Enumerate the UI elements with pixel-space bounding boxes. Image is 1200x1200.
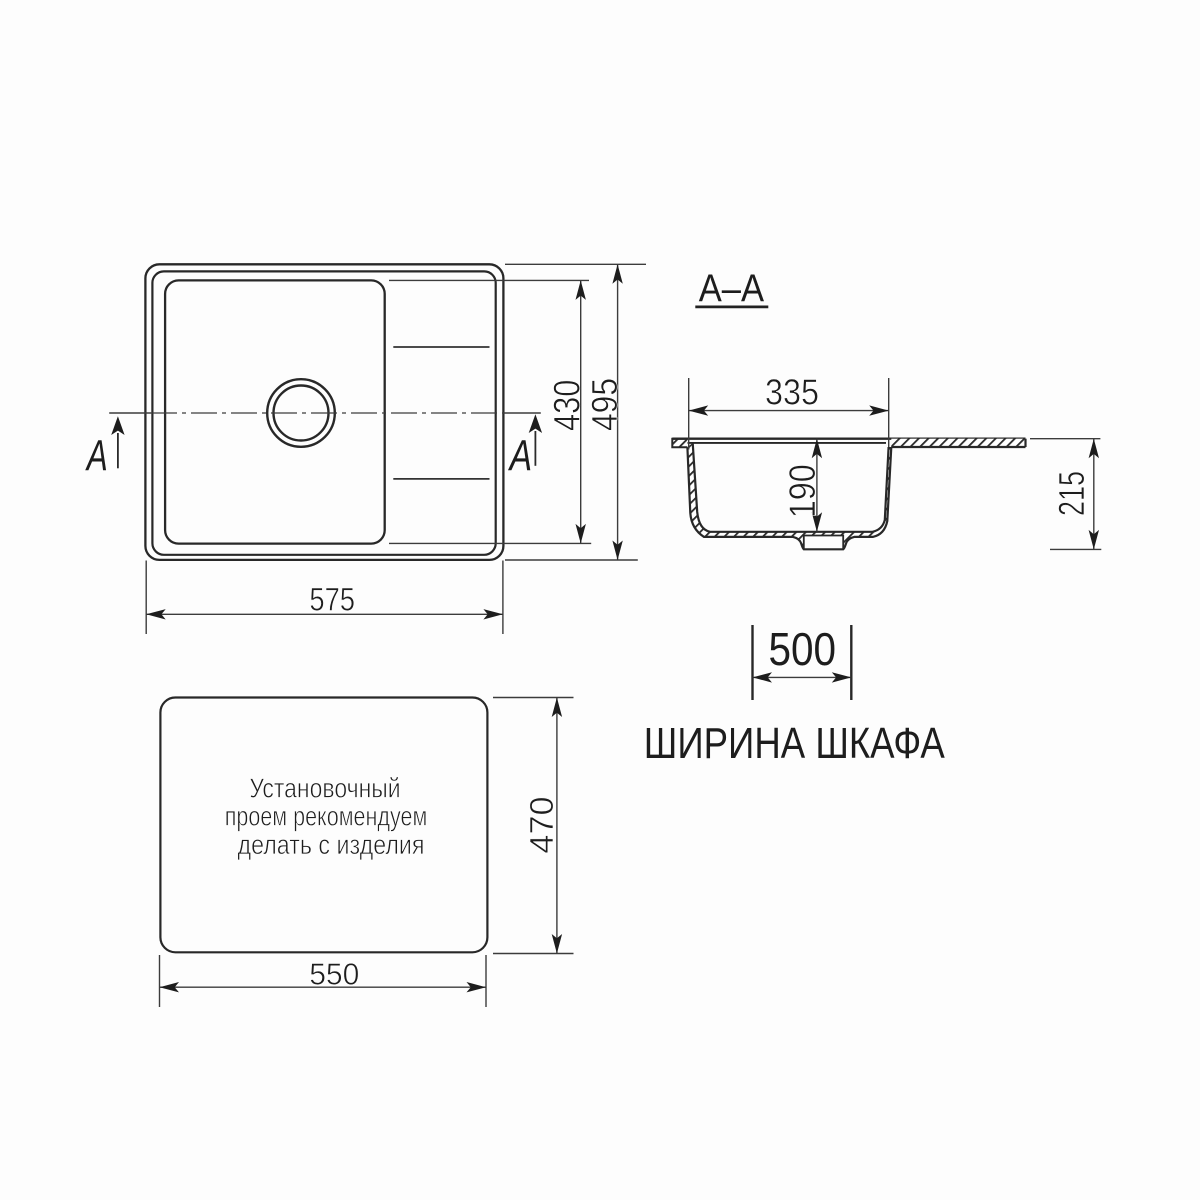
svg-text:А–А: А–А (699, 267, 764, 310)
svg-text:Установочный: Установочный (249, 772, 400, 803)
svg-text:ШИРИНА ШКАФА: ШИРИНА ШКАФА (644, 720, 945, 768)
svg-text:190: 190 (782, 464, 823, 518)
svg-text:500: 500 (769, 623, 837, 675)
svg-text:430: 430 (546, 380, 587, 431)
svg-text:А: А (507, 433, 532, 481)
svg-text:делать с изделия: делать с изделия (238, 829, 425, 860)
svg-text:470: 470 (524, 796, 561, 853)
svg-text:проем рекомендуем: проем рекомендуем (225, 801, 428, 832)
svg-text:550: 550 (309, 957, 359, 992)
svg-text:495: 495 (584, 378, 625, 431)
svg-text:А: А (85, 433, 108, 481)
svg-text:335: 335 (765, 372, 819, 412)
svg-text:575: 575 (309, 582, 355, 618)
svg-text:215: 215 (1051, 471, 1092, 516)
